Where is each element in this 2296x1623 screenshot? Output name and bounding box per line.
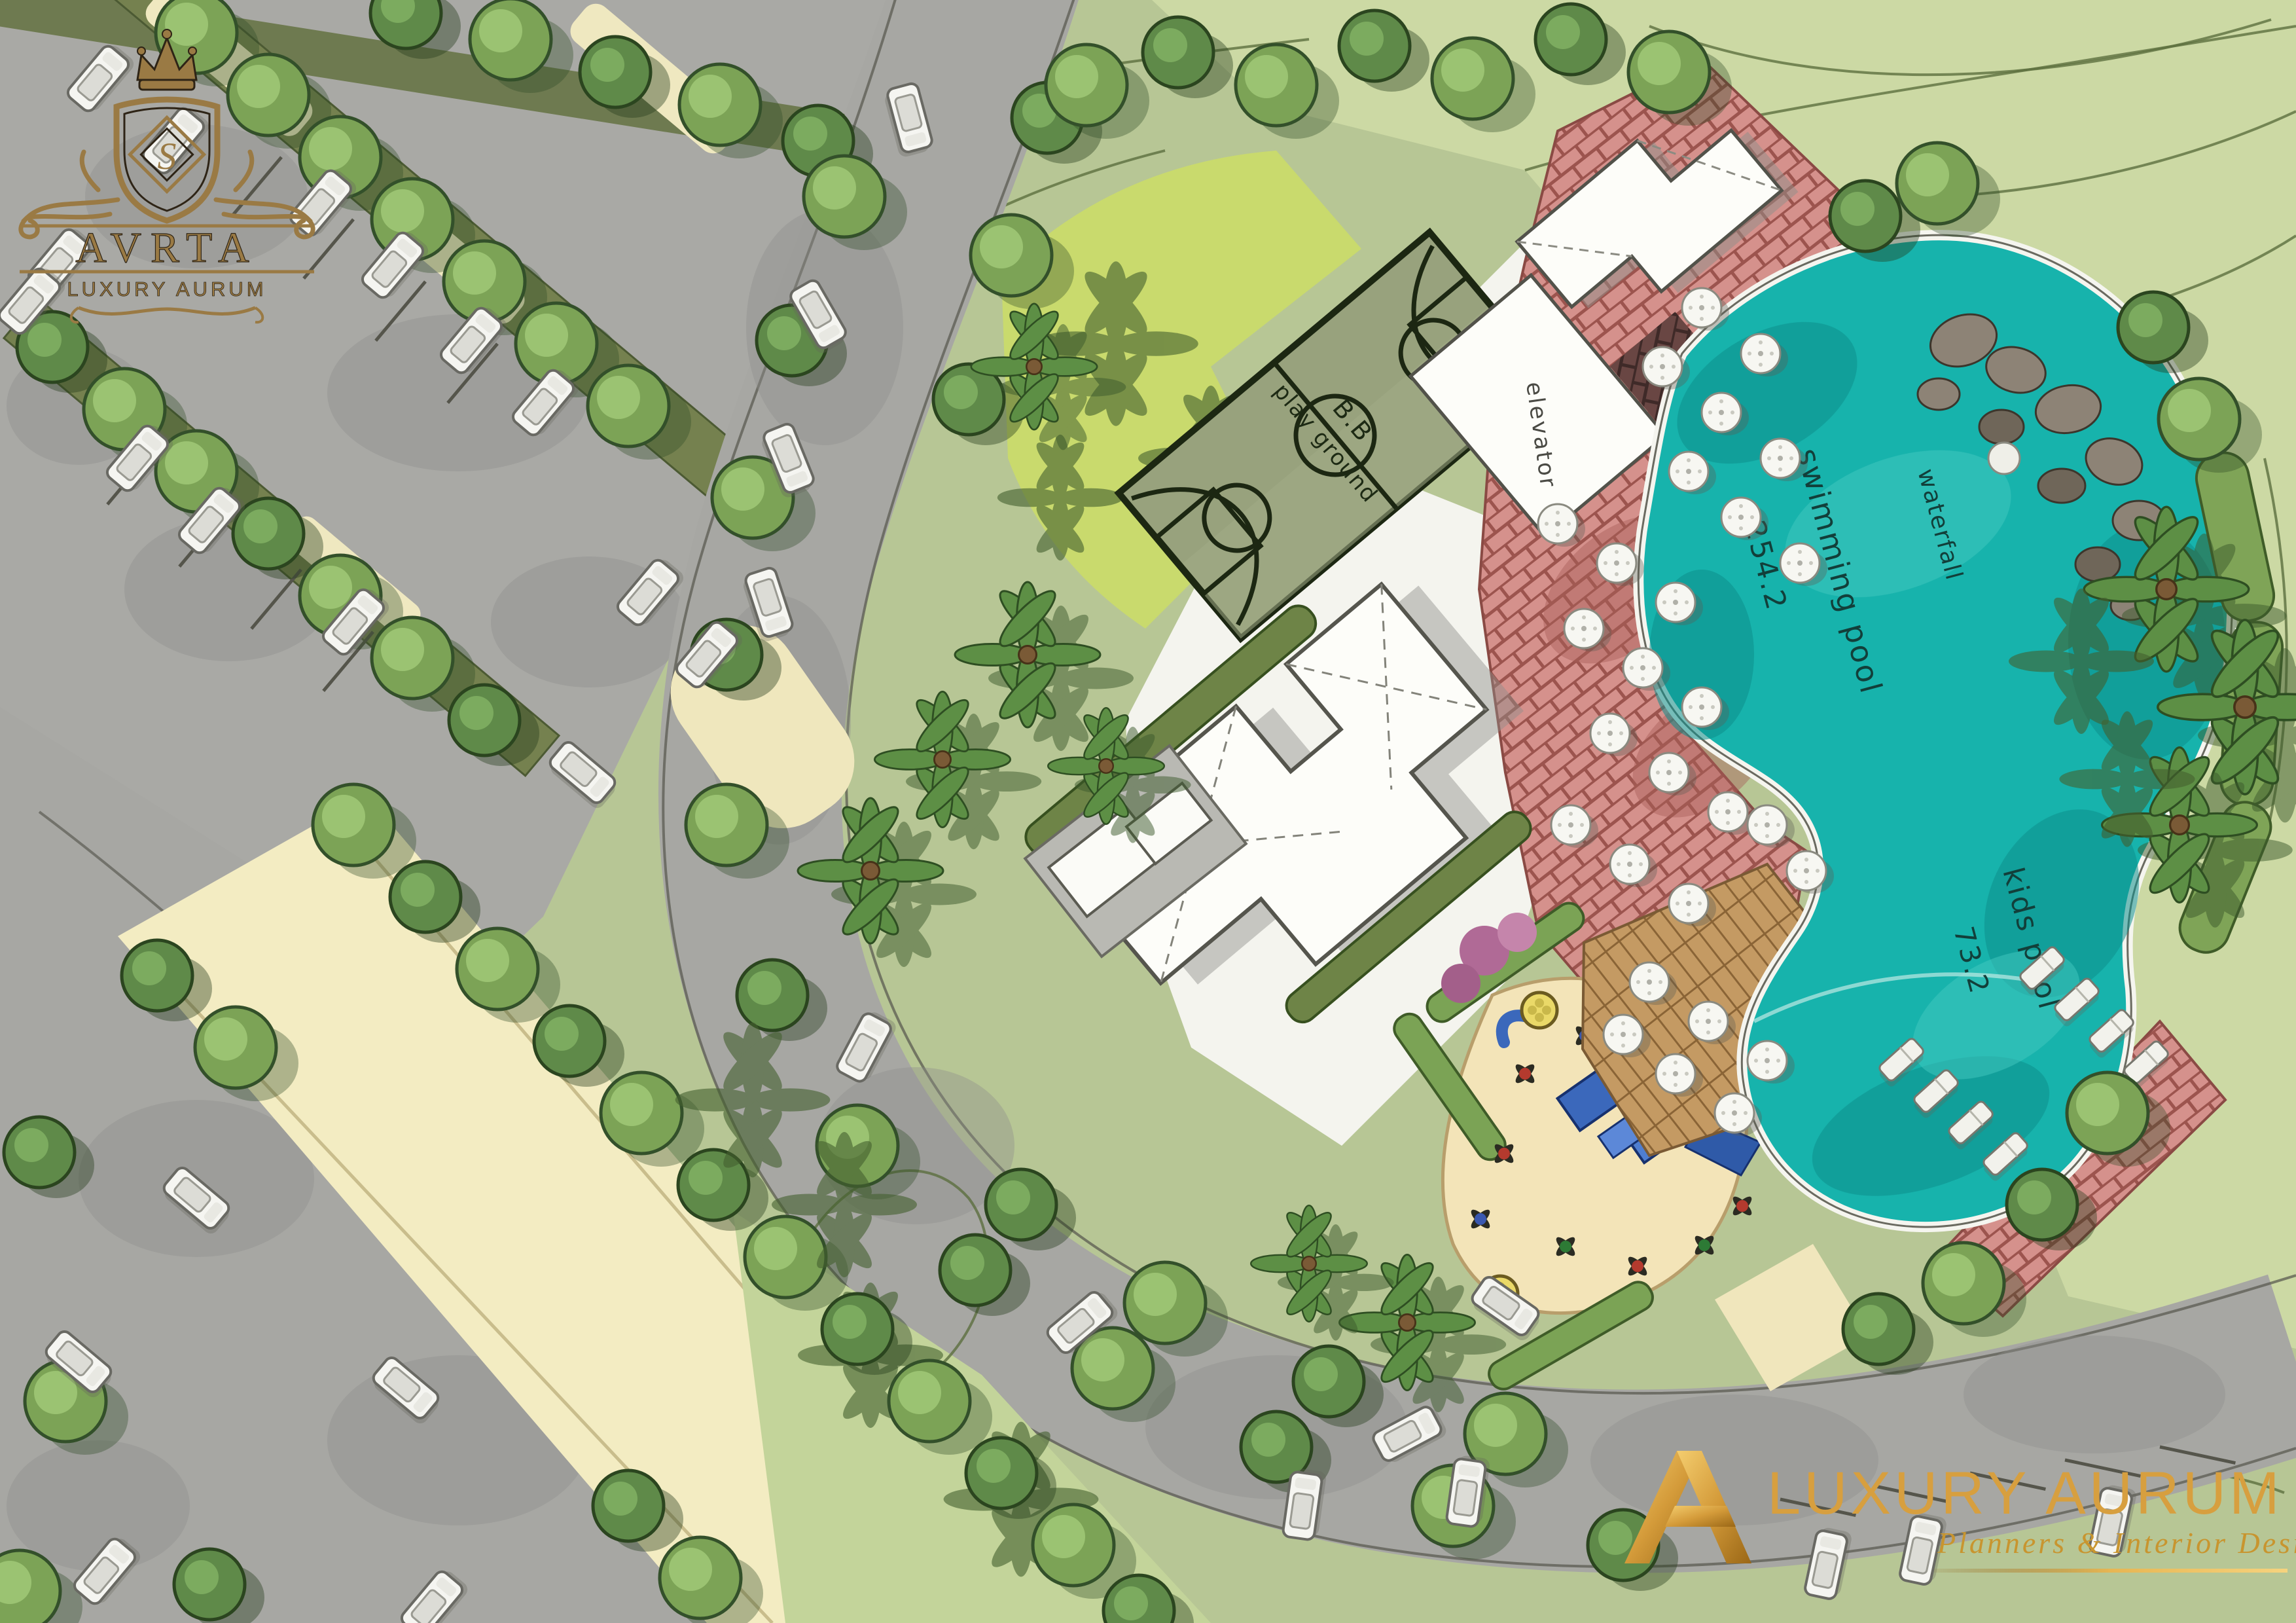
studio-underline	[1934, 1569, 2287, 1573]
crest-subtitle: LUXURY AURUM	[67, 278, 266, 301]
masterplan-page: B.B play ground	[0, 0, 2296, 1623]
crest-monogram: S	[158, 135, 177, 177]
crest-title: AVRTA	[75, 224, 259, 272]
studio-title: LUXURY AURUM	[1767, 1460, 2283, 1527]
site-plan: B.B play ground	[0, 0, 2296, 1623]
studio-subtitle: Planners & Interior Designers	[1937, 1526, 2296, 1559]
